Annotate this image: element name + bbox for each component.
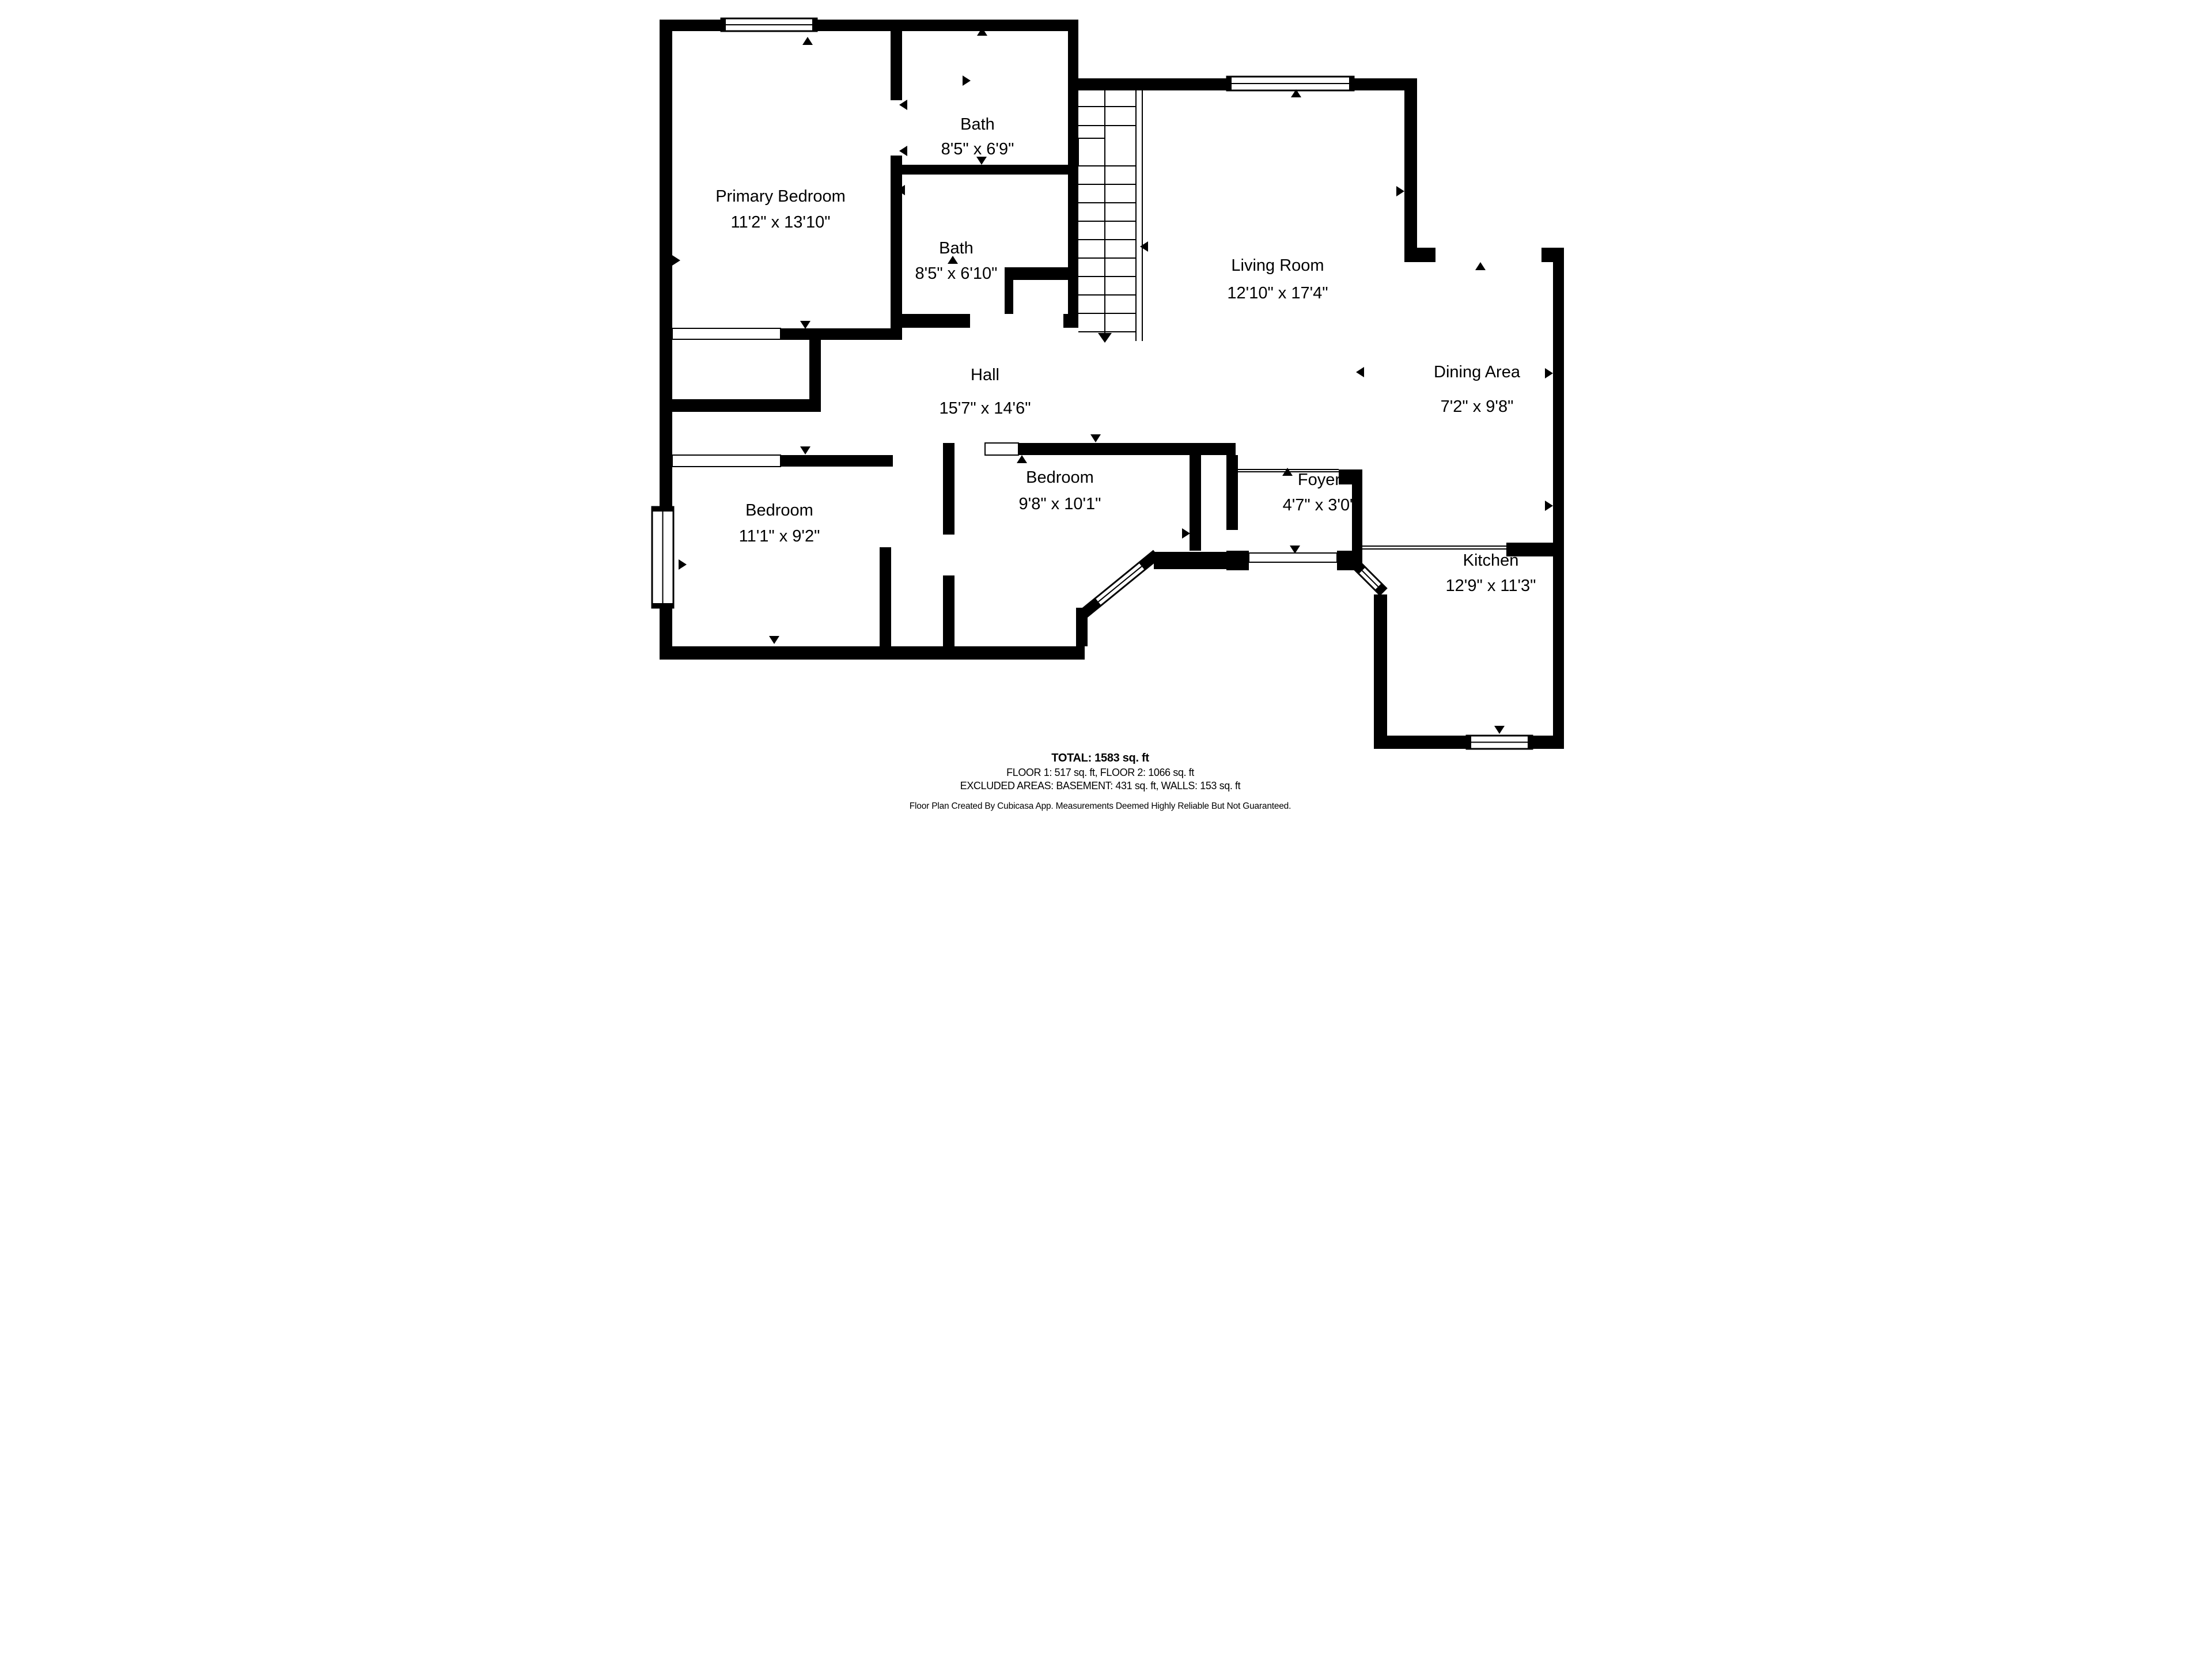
wall-segment (781, 455, 893, 467)
room-dims-primary-bedroom: 11'2" x 13'10" (730, 213, 830, 232)
wall-segment (1553, 248, 1564, 749)
room-label-primary-bedroom: Primary Bedroom (715, 187, 846, 206)
room-label-living-room: Living Room (1231, 256, 1324, 275)
room-dims-living-room: 12'10" x 17'4" (1227, 284, 1328, 302)
wall-segment (1226, 455, 1238, 530)
wall-segment (1404, 248, 1435, 262)
wall-segment (1068, 78, 1227, 90)
wall-segment (1226, 551, 1249, 570)
window-icon (721, 18, 726, 31)
opening-line (1249, 553, 1337, 562)
wall-segment (943, 575, 955, 646)
room-dims-hall: 15'7" x 14'6" (939, 399, 1031, 418)
wall-segment (891, 156, 902, 339)
window-icon (812, 18, 817, 31)
wall-segment (1018, 443, 1236, 455)
footer-excluded-areas: EXCLUDED AREAS: BASEMENT: 431 sq. ft, WA… (960, 780, 1241, 791)
room-label-foyer: Foyer (1298, 471, 1340, 489)
wall-segment (1154, 552, 1229, 569)
room-dims-dining-area: 7'2" x 9'8" (1441, 397, 1514, 416)
wall-segment (660, 646, 1085, 660)
floor-plan: Primary Bedroom11'2" x 13'10"Bath8'5" x … (553, 0, 1659, 829)
footer-floor-areas: FLOOR 1: 517 sq. ft, FLOOR 2: 1066 sq. f… (1006, 767, 1194, 778)
room-label-bedroom-left: Bedroom (745, 501, 813, 520)
wall-segment (880, 547, 891, 646)
wall-segment (1374, 594, 1387, 749)
footer-disclaimer: Floor Plan Created By Cubicasa App. Meas… (910, 801, 1291, 811)
window-icon (1467, 736, 1471, 749)
room-dims-bath-upper: 8'5" x 6'9" (941, 140, 1014, 158)
room-dims-bedroom-center: 9'8" x 10'1" (1019, 495, 1101, 513)
wall-segment (1063, 314, 1078, 328)
wall-segment (1005, 267, 1013, 314)
wall-segment (1068, 30, 1078, 328)
page: Primary Bedroom11'2" x 13'10"Bath8'5" x … (553, 0, 1659, 829)
room-label-hall: Hall (971, 366, 999, 384)
window-icon (1227, 77, 1232, 90)
wall-segment (672, 399, 821, 412)
wall-segment (1190, 455, 1201, 551)
window-icon (652, 603, 673, 608)
room-label-bedroom-center: Bedroom (1026, 468, 1094, 487)
room-dims-bath-lower: 8'5" x 6'10" (915, 264, 998, 283)
wall-segment (1404, 78, 1417, 262)
opening-line (672, 328, 781, 339)
room-dims-kitchen: 12'9" x 11'3" (1446, 577, 1536, 595)
footer-total-area: TOTAL: 1583 sq. ft (1051, 752, 1149, 764)
window-icon (1528, 736, 1532, 749)
wall-segment (781, 328, 902, 340)
room-dims-bedroom-left: 11'1" x 9'2" (739, 527, 820, 546)
wall-segment (902, 165, 1078, 175)
wall-segment (817, 20, 1078, 31)
room-label-dining-area: Dining Area (1434, 363, 1521, 381)
wall-segment (1532, 736, 1564, 749)
wall-segment (943, 443, 955, 535)
room-label-kitchen: Kitchen (1463, 551, 1519, 570)
opening-line (672, 455, 781, 467)
wall-segment (660, 20, 672, 507)
window-icon (652, 507, 673, 512)
wall-segment (902, 314, 970, 328)
window-icon (1349, 77, 1354, 90)
wall-segment (1374, 736, 1467, 749)
opening-line (985, 443, 1018, 455)
wall-segment (1013, 267, 1078, 280)
room-label-bath-upper: Bath (960, 115, 995, 134)
room-dims-foyer: 4'7" x 3'0" (1283, 496, 1356, 514)
wall-segment (891, 30, 902, 100)
room-label-bath-lower: Bath (939, 239, 974, 257)
